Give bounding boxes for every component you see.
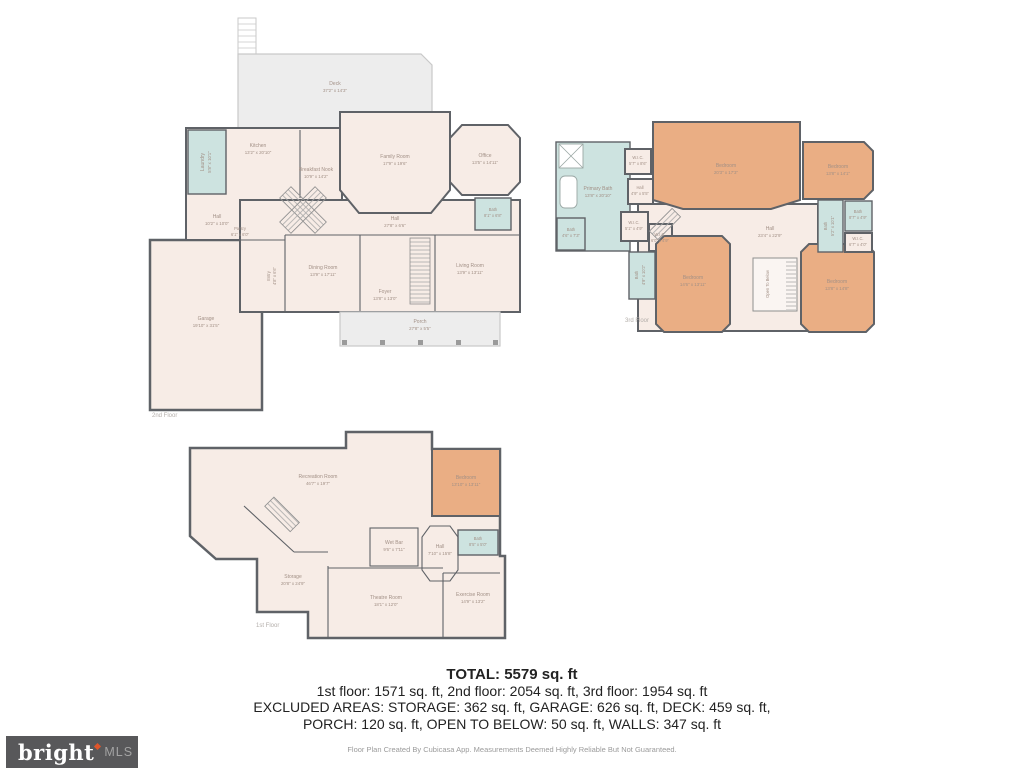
svg-text:Bedroom: Bedroom (716, 163, 736, 169)
svg-text:Dining Room: Dining Room (309, 265, 338, 271)
svg-text:20'8" x 24'9": 20'8" x 24'9" (281, 581, 306, 586)
svg-text:Deck: Deck (329, 81, 341, 87)
floor-label-1st: 1st Floor (256, 623, 279, 629)
svg-text:Bedroom: Bedroom (828, 164, 848, 170)
svg-text:Open To Below: Open To Below (765, 270, 770, 298)
svg-text:Foyer: Foyer (379, 289, 392, 295)
svg-text:13'8" x 20'10": 13'8" x 20'10" (585, 193, 612, 198)
bathtub-icon (560, 176, 577, 208)
svg-text:13'8" x 14'8": 13'8" x 14'8" (825, 286, 850, 291)
svg-text:Hall: Hall (391, 216, 400, 222)
svg-text:Bath: Bath (854, 209, 863, 214)
svg-text:Recreation Room: Recreation Room (299, 474, 338, 480)
svg-text:Primary Bath: Primary Bath (584, 186, 613, 192)
svg-text:Porch: Porch (413, 319, 426, 325)
floor-plan-1st: Recreation Room 46'7" x 19'7" Bedroom 13… (186, 426, 521, 661)
svg-text:18'1" x 12'0": 18'1" x 12'0" (374, 602, 399, 607)
floor-areas: 1st floor: 1571 sq. ft, 2nd floor: 2054 … (0, 683, 1024, 699)
area-summary: TOTAL: 5579 sq. ft 1st floor: 1571 sq. f… (0, 666, 1024, 732)
foyer-stairs (410, 238, 430, 304)
logo-wordmark: bright (18, 742, 94, 763)
svg-text:10'9" x 14'2": 10'9" x 14'2" (304, 174, 329, 179)
svg-text:37'2" x 14'3": 37'2" x 14'3" (323, 88, 348, 93)
svg-text:W.I.C.: W.I.C. (632, 155, 643, 160)
svg-text:6'1" x 6'0": 6'1" x 6'0" (231, 232, 249, 237)
svg-text:Storage: Storage (284, 574, 302, 580)
svg-text:17'9" x 19'6": 17'9" x 19'6" (383, 161, 408, 166)
svg-text:46'7" x 19'7": 46'7" x 19'7" (306, 481, 331, 486)
logo-accent-icon (94, 742, 101, 749)
svg-text:8'1" x 6'8": 8'1" x 6'8" (484, 213, 502, 218)
svg-text:Wet Bar: Wet Bar (385, 540, 403, 546)
svg-text:8'5" x 5'0": 8'5" x 5'0" (469, 542, 487, 547)
floor-plan-3rd: Primary Bath 13'8" x 20'10" W.I.C. 5'7" … (553, 112, 953, 347)
svg-text:Kitchen: Kitchen (250, 143, 267, 149)
svg-text:13'8" x 13'0": 13'8" x 13'0" (373, 296, 398, 301)
brightmls-logo: bright MLS (6, 736, 138, 768)
floor-label-3rd: 3rd Floor (625, 318, 649, 324)
room-open-to-below: Open To Below (765, 270, 770, 298)
svg-text:27'8" x 5'5": 27'8" x 5'5" (409, 326, 431, 331)
svg-text:19'10" x 31'5": 19'10" x 31'5" (193, 323, 220, 328)
total-area: TOTAL: 5579 sq. ft (0, 666, 1024, 683)
svg-text:Entry: Entry (266, 270, 271, 281)
svg-text:W.I.C.: W.I.C. (852, 236, 863, 241)
svg-text:10'2" x 10'0": 10'2" x 10'0" (205, 221, 230, 226)
svg-text:14'9" x 13'2": 14'9" x 13'2" (461, 599, 486, 604)
svg-text:W.I.C.: W.I.C. (628, 220, 639, 225)
svg-text:Bedroom: Bedroom (456, 475, 476, 481)
svg-text:Garage: Garage (198, 316, 215, 322)
svg-text:Bedroom: Bedroom (683, 275, 703, 281)
svg-text:Family Room: Family Room (380, 154, 409, 160)
floor-plan-2nd: Deck 37'2" x 14'3" Laundry 5'8" x 10'1" … (140, 8, 540, 420)
svg-text:20'3" x 17'3": 20'3" x 17'3" (714, 170, 739, 175)
svg-text:Exercise Room: Exercise Room (456, 592, 490, 598)
floor-plan-page: Deck 37'2" x 14'3" Laundry 5'8" x 10'1" … (0, 0, 1024, 768)
svg-text:8'7" x 4'9": 8'7" x 4'9" (849, 215, 867, 220)
svg-text:27'8" x 6'6": 27'8" x 6'6" (384, 223, 406, 228)
svg-text:Bath: Bath (489, 207, 498, 212)
logo-mls-label: MLS (104, 745, 133, 759)
excluded-areas-1: EXCLUDED AREAS: STORAGE: 362 sq. ft, GAR… (0, 699, 1024, 715)
svg-text:5'8" x 10'1": 5'8" x 10'1" (207, 151, 212, 173)
svg-text:W.I.C.: W.I.C. (654, 232, 665, 237)
svg-text:23'4" x 22'9": 23'4" x 22'9" (758, 233, 783, 238)
svg-text:Hall: Hall (766, 226, 775, 232)
svg-text:13'2" x 20'10": 13'2" x 20'10" (245, 150, 272, 155)
svg-text:Bath: Bath (567, 227, 576, 232)
svg-text:5'1" x 4'9": 5'1" x 4'9" (625, 226, 643, 231)
svg-text:13'8" x 14'1": 13'8" x 14'1" (826, 171, 851, 176)
excluded-areas-2: PORCH: 120 sq. ft, OPEN TO BELOW: 50 sq.… (0, 716, 1024, 732)
svg-text:4'9" x 5'5": 4'9" x 5'5" (631, 191, 649, 196)
svg-text:Laundry: Laundry (200, 152, 206, 171)
svg-text:Breakfast Nook: Breakfast Nook (299, 167, 334, 173)
svg-text:13'5" x 14'11": 13'5" x 14'11" (472, 160, 499, 165)
svg-text:Pantry: Pantry (234, 226, 247, 231)
svg-text:7'10" x 15'8": 7'10" x 15'8" (428, 551, 453, 556)
svg-text:6'7" x 4'0": 6'7" x 4'0" (849, 242, 867, 247)
svg-text:9'6" x 7'11": 9'6" x 7'11" (383, 547, 405, 552)
svg-text:14'6" x 13'11": 14'6" x 13'11" (680, 282, 707, 287)
svg-text:Living Room: Living Room (456, 263, 484, 269)
svg-text:Bath: Bath (634, 270, 639, 279)
svg-text:Theatre Room: Theatre Room (370, 595, 402, 601)
deck-stairs (238, 18, 256, 54)
svg-text:Bath: Bath (474, 536, 483, 541)
svg-text:4'9" x 10'2": 4'9" x 10'2" (641, 264, 646, 285)
svg-text:Bedroom: Bedroom (827, 279, 847, 285)
svg-text:Hall: Hall (636, 185, 643, 190)
svg-text:Bath: Bath (823, 221, 828, 230)
svg-text:Hall: Hall (436, 544, 445, 550)
svg-text:4'8" x 6'6": 4'8" x 6'6" (272, 267, 277, 285)
svg-text:6'0" x 4'9": 6'0" x 4'9" (651, 238, 669, 243)
svg-text:4'6" x 7'3": 4'6" x 7'3" (562, 233, 580, 238)
svg-text:13'9" x 13'11": 13'9" x 13'11" (457, 270, 484, 275)
svg-text:Office: Office (479, 153, 492, 159)
svg-text:Hall: Hall (213, 214, 222, 220)
svg-text:5'7" x 8'6": 5'7" x 8'6" (629, 161, 647, 166)
floor-label-2nd: 2nd Floor (152, 413, 177, 419)
svg-text:5'2" x 10'1": 5'2" x 10'1" (830, 215, 835, 236)
stairwell-stairs (786, 259, 796, 310)
svg-text:13'10" x 13'11": 13'10" x 13'11" (452, 482, 481, 487)
creator-credit: Floor Plan Created By Cubicasa App. Meas… (0, 745, 1024, 754)
svg-text:13'9" x 17'11": 13'9" x 17'11" (310, 272, 337, 277)
